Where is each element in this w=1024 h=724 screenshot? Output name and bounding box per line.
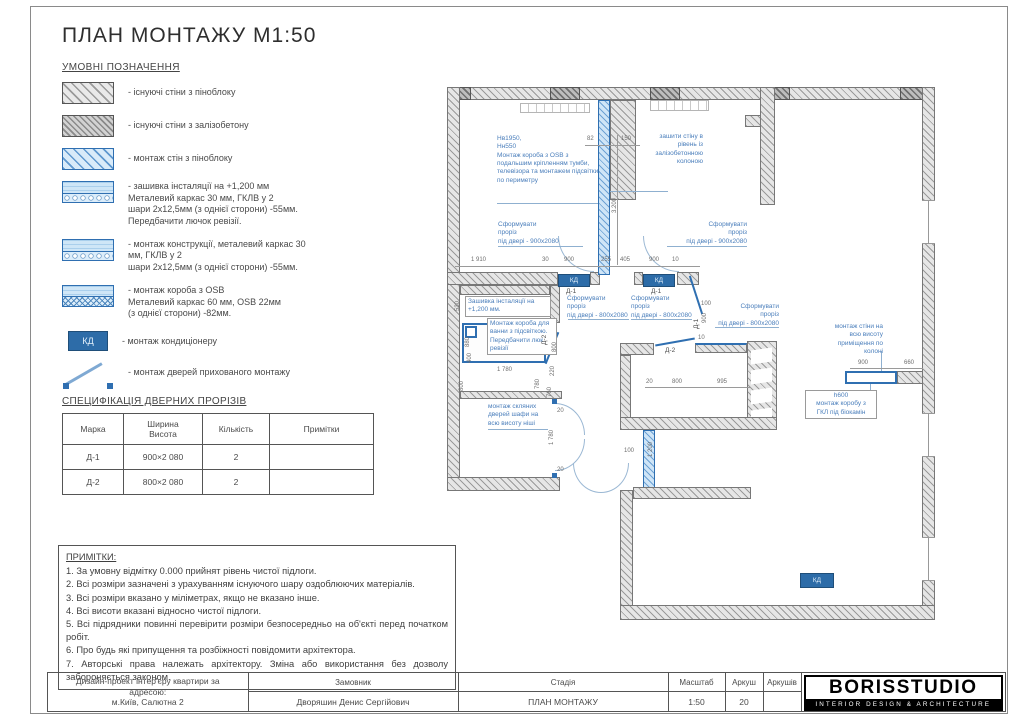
door-label: Д-2 [541, 335, 548, 345]
dimension-text: 900 [649, 257, 659, 263]
hatch-blue-swatch [62, 148, 114, 170]
legend-item-label: - існуючі стіни з піноблоку [128, 82, 235, 99]
legend-item: - зашивка інсталяції на +1,200 мм Метале… [62, 181, 392, 228]
panel osb-swatch [62, 285, 114, 307]
dimension-text: 900 [702, 313, 708, 323]
spec-cell: Д-1 [63, 445, 124, 470]
legend-item-label: - монтаж короба з OSB Металевий каркас 6… [128, 285, 281, 320]
note-item: 5. Всі підрядники повинні перевірити роз… [66, 618, 448, 644]
note-item: 4. Всі висоти вказані відносно чистої пі… [66, 605, 448, 618]
legend-item-label: - існуючі стіни з залізобетону [128, 115, 249, 132]
spec-table-title: СПЕЦИФІКАЦІЯ ДВЕРНИХ ПРОРІЗІВ [62, 396, 246, 407]
dimension-text: 1 910 [471, 257, 486, 263]
door-label: Д-2 [665, 347, 675, 354]
door-label: Д-1 [693, 319, 700, 329]
client-name: Дворяшин Денис Сергійович [249, 692, 458, 711]
dimension-text: 405 [620, 257, 630, 263]
dimension-text: 255 [601, 257, 611, 263]
plan-annotation: h600 монтаж коробу з ГКЛ під біокамін [805, 390, 877, 419]
plan-annotation: Сформувати проріз під двері - 800х2080 [567, 295, 629, 320]
spec-cell: Д-2 [63, 470, 124, 495]
plan-texts: Нв1950, Нн550 Монтаж короба з OSB з пода… [445, 85, 967, 622]
dimension-text: 800 [552, 342, 558, 352]
spec-cell: 800×2 080 [124, 470, 203, 495]
legend-item-label: - монтаж дверей прихованого монтажу [128, 362, 290, 379]
dimension-text: 100 [624, 448, 634, 454]
legend-item: - існуючі стіни з залізобетону [62, 115, 392, 137]
legend-item: - існуючі стіни з піноблоку [62, 82, 392, 104]
note-item: 2. Всі розміри зазначені з урахуванням і… [66, 578, 448, 591]
legend-item: - монтаж короба з OSB Металевий каркас 6… [62, 285, 392, 320]
spec-cell [270, 470, 374, 495]
note-item: 1. За умовну відмітку 0.000 прийнят ріве… [66, 565, 448, 578]
spec-cell: 900×2 080 [124, 445, 203, 470]
sheets-label: Аркушів [764, 673, 801, 692]
sheets-value [764, 692, 801, 711]
logo-cell: BORISSTUDIO INTERIOR DESIGN & ARCHITECTU… [802, 673, 1006, 711]
title-block: Дизайн-проект інтер'єру квартири за адре… [47, 672, 1006, 712]
spec-cell [270, 445, 374, 470]
dimension-text: 20 [557, 467, 564, 473]
notes-box: ПРИМІТКИ: 1. За умовну відмітку 0.000 пр… [58, 545, 456, 690]
dimension-text: 1 780 [497, 367, 512, 373]
plan-annotation: Сформувати проріз під двері - 900х2080 [665, 221, 747, 246]
spec-column-header: Примітки [270, 414, 374, 445]
dimension-text: 1 780 [549, 430, 555, 445]
dimension-text: 880 [465, 337, 471, 347]
hatch-gray-swatch [62, 82, 114, 104]
dimension-text: 3.200 [612, 198, 618, 213]
hatch-gray-dense-swatch [62, 115, 114, 137]
legend-item-label: - монтаж кондиціонеру [122, 331, 217, 348]
dimension-text: 760 [547, 387, 553, 397]
plan-annotation: Зашивка інсталяції на +1,200 мм. [465, 296, 551, 317]
legend-item: - монтаж стін з піноблоку [62, 148, 392, 170]
dimension-text: 100 [701, 301, 711, 307]
dimension-text: 20 [646, 379, 653, 385]
plan-annotation: монтаж стіни на всю висоту приміщення по… [819, 323, 883, 356]
door-spec-table: МаркаШирина ВисотаКількістьПриміткиД-190… [62, 413, 374, 495]
dimension-text: 900 [858, 360, 868, 366]
sheet-label: Аркуш [726, 673, 763, 692]
dimension-text: 530 [455, 301, 461, 311]
plan-annotation: Сформувати проріз під двері - 800х2080 [631, 295, 693, 320]
legend-item-label: - монтаж конструкції, металевий каркас 3… [128, 239, 306, 274]
door-label: Д-1 [566, 288, 576, 295]
legend-item: - монтаж конструкції, металевий каркас 3… [62, 239, 392, 274]
studio-logo-text: BORISSTUDIO [806, 677, 1002, 699]
dimension-text: 900 [564, 257, 574, 263]
dimension-text: 800 [672, 379, 682, 385]
stage-label: Стадія [459, 673, 668, 692]
stage-value: ПЛАН МОНТАЖУ [459, 692, 668, 711]
plan-annotation: Сформувати проріз під двері - 900х2080 [498, 221, 583, 246]
dimension-text: 780 [535, 379, 541, 389]
dimension-text: 400 [467, 353, 473, 363]
scale-value: 1:50 [669, 692, 725, 711]
client-label: Замовник [249, 673, 458, 692]
spec-cell: 2 [203, 470, 270, 495]
dimension-text: 30 [542, 257, 549, 263]
spec-column-header: Кількість [203, 414, 270, 445]
dimension-text: 10 [672, 257, 679, 263]
spec-cell: 2 [203, 445, 270, 470]
hidden-door-icon [62, 362, 114, 390]
spec-column-header: Ширина Висота [124, 414, 203, 445]
scale-label: Масштаб [669, 673, 725, 692]
notes-list: 1. За умовну відмітку 0.000 прийнят ріве… [66, 565, 448, 684]
note-item: 6. Про будь які припущення та розбіжност… [66, 644, 448, 657]
dimension-text: 800 [459, 381, 465, 391]
dimension-text: 220 [550, 366, 556, 376]
door-label: Д-1 [651, 288, 661, 295]
notes-title: ПРИМІТКИ: [66, 551, 448, 564]
plan-annotation: Нв1950, Нн550 Монтаж короба з OSB з пода… [497, 135, 602, 185]
legend-item-label: - монтаж стін з піноблоку [128, 148, 232, 165]
legend-list: - існуючі стіни з піноблоку- існуючі сті… [62, 82, 392, 401]
dimension-text: 10 [698, 335, 705, 341]
table-row: Д-2800×2 0802 [63, 470, 374, 495]
spec-column-header: Марка [63, 414, 124, 445]
studio-logo-subtitle: INTERIOR DESIGN & ARCHITECTURE [806, 699, 1002, 709]
legend-item: КД- монтаж кондиціонеру [62, 331, 392, 351]
table-row: Д-1900×2 0802 [63, 445, 374, 470]
plan-annotation: зашити стіну в рівень із залізобетонною … [641, 133, 703, 166]
floor-plan: КД КД КД Нв1950, Нн550 Монтаж короба з O… [445, 85, 967, 622]
legend-item-label: - зашивка інсталяції на +1,200 мм Метале… [128, 181, 298, 228]
dimension-text: 20 [557, 408, 564, 414]
dimension-text: 82 [587, 136, 594, 142]
dimension-text: 660 [904, 360, 914, 366]
panel dots-swatch [62, 181, 114, 203]
studio-logo: BORISSTUDIO INTERIOR DESIGN & ARCHITECTU… [804, 675, 1004, 711]
plan-annotation: Сформувати проріз під двері - 800х2080 [715, 303, 779, 328]
sheet-number: 20 [726, 692, 763, 711]
plan-annotation: монтаж скляних дверей шафи на всю висоту… [488, 403, 550, 428]
dimension-text: 1 200 [648, 442, 654, 457]
dimension-text: 150 [621, 136, 631, 142]
ac-unit-symbol: КД [68, 331, 108, 351]
page-title: ПЛАН МОНТАЖУ М1:50 [62, 24, 316, 48]
panel dots-swatch [62, 239, 114, 261]
legend-item: - монтаж дверей прихованого монтажу [62, 362, 392, 390]
legend-title: УМОВНІ ПОЗНАЧЕННЯ [62, 62, 180, 73]
dimension-text: 995 [717, 379, 727, 385]
project-name: Дизайн-проект інтер'єру квартири за адре… [48, 673, 249, 711]
note-item: 3. Всі розміри вказано у міліметрах, якщ… [66, 592, 448, 605]
